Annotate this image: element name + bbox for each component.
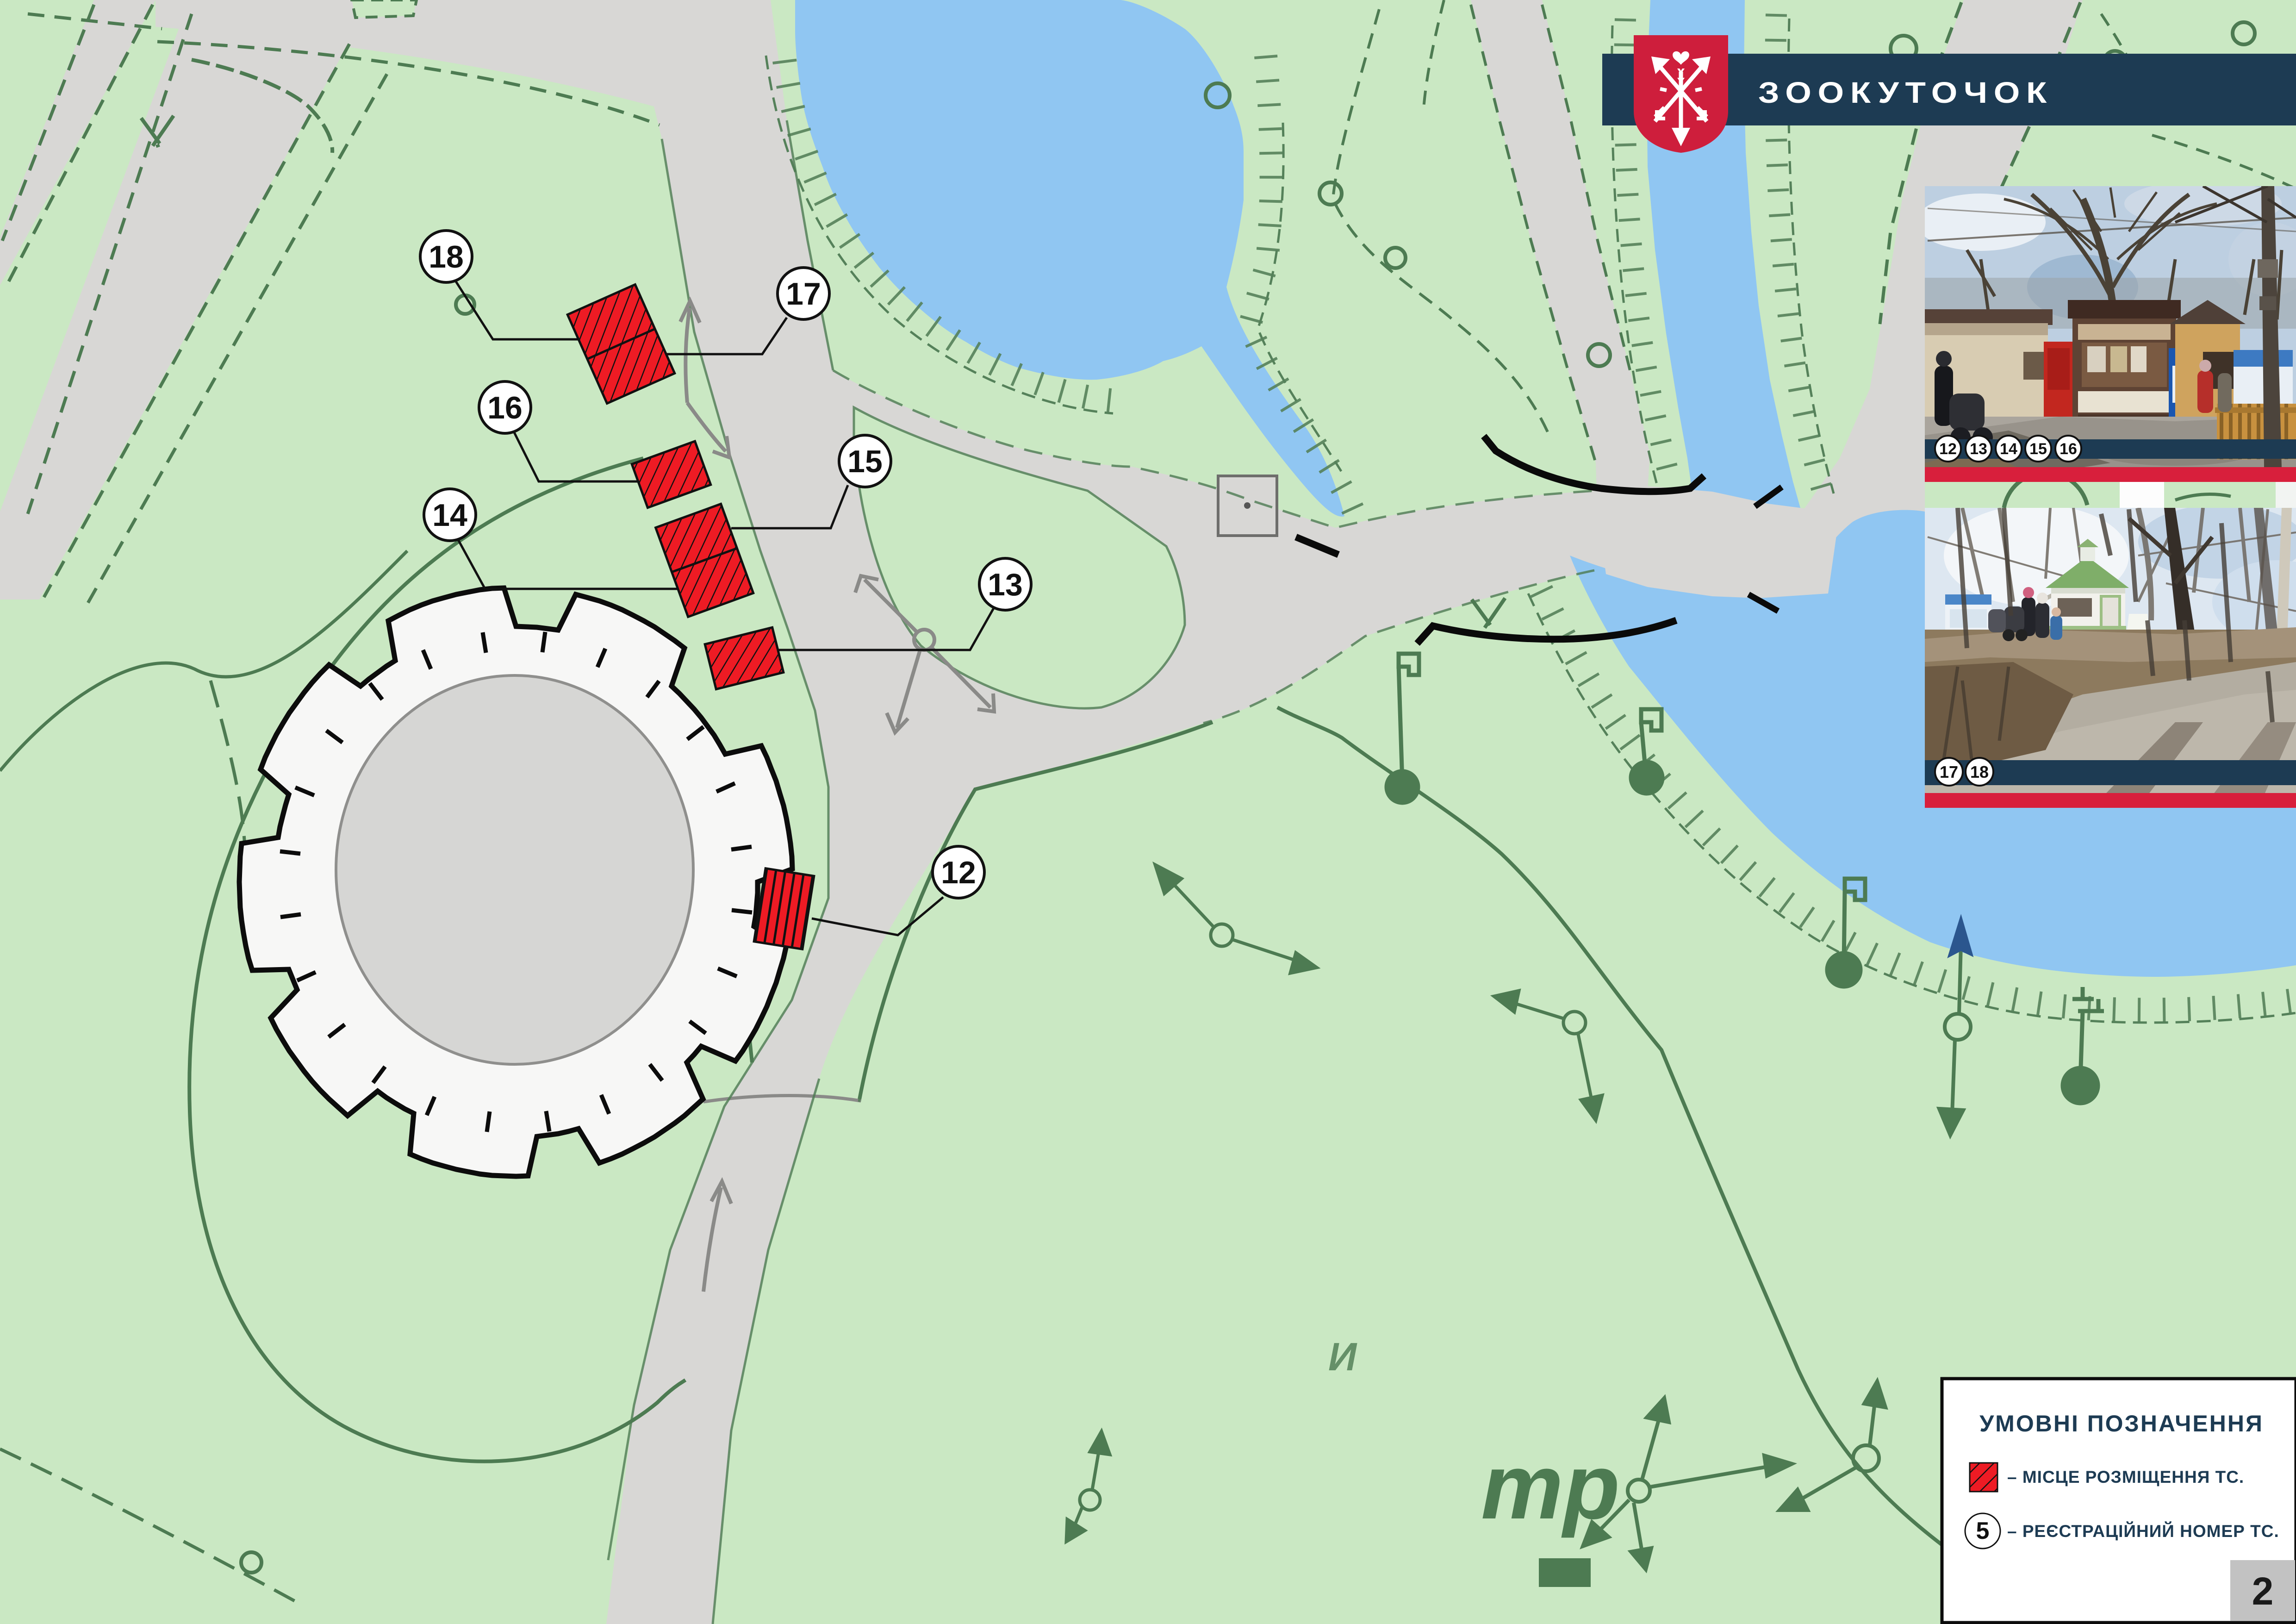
svg-text:ЗООКУТОЧОК: ЗООКУТОЧОК <box>1758 76 2053 109</box>
svg-text:15: 15 <box>847 444 883 479</box>
svg-text:12: 12 <box>1939 440 1957 458</box>
svg-text:13: 13 <box>988 567 1023 602</box>
svg-text:18: 18 <box>1970 762 1989 781</box>
svg-text:И: И <box>1328 1335 1357 1379</box>
svg-text:15: 15 <box>2029 440 2047 458</box>
svg-text:16: 16 <box>2060 440 2077 458</box>
svg-text:тр: тр <box>1481 1435 1620 1538</box>
svg-text:– МІСЦЕ РОЗМІЩЕННЯ ТС.: – МІСЦЕ РОЗМІЩЕННЯ ТС. <box>2007 1468 2244 1487</box>
svg-text:13: 13 <box>1970 440 1987 458</box>
svg-text:– РЕЄСТРАЦІЙНИЙ НОМЕР ТС.: – РЕЄСТРАЦІЙНИЙ НОМЕР ТС. <box>2007 1521 2279 1541</box>
svg-text:14: 14 <box>2000 440 2017 458</box>
svg-text:14: 14 <box>432 498 467 533</box>
svg-text:17: 17 <box>1940 762 1958 781</box>
svg-text:18: 18 <box>429 239 464 275</box>
svg-text:УМОВНІ ПОЗНАЧЕННЯ: УМОВНІ ПОЗНАЧЕННЯ <box>1979 1411 2264 1437</box>
svg-text:17: 17 <box>786 276 821 312</box>
svg-text:5: 5 <box>1976 1518 1990 1544</box>
svg-text:12: 12 <box>941 855 976 890</box>
svg-text:16: 16 <box>487 390 523 425</box>
svg-text:2: 2 <box>2252 1569 2274 1613</box>
